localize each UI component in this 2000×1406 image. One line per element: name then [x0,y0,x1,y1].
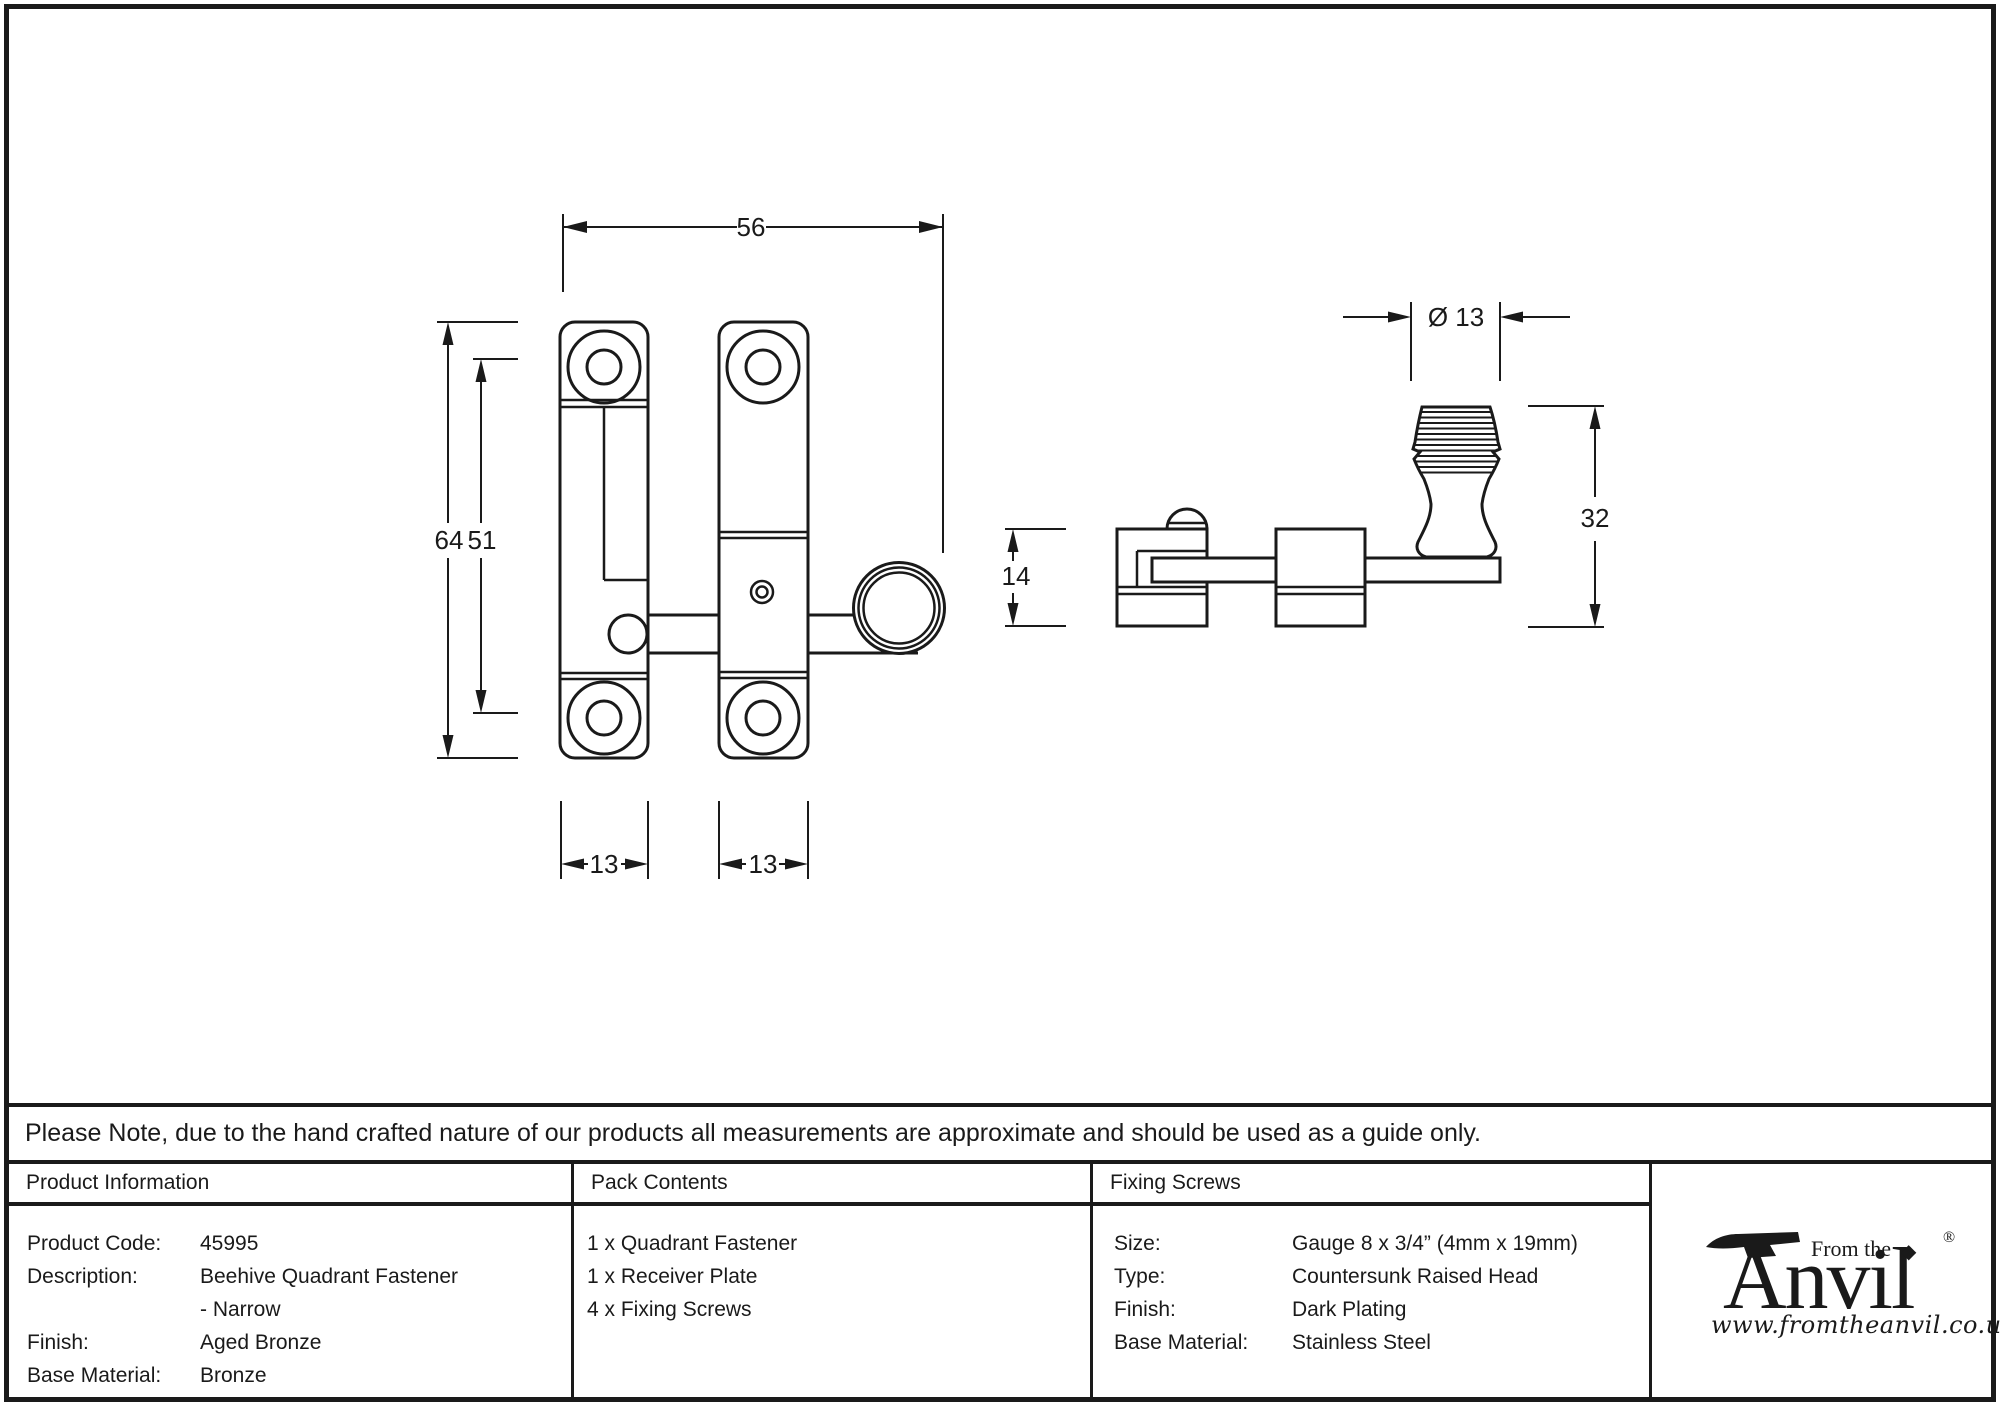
diamond-icon: ◆ [1901,1239,1916,1264]
front-view: 56 64 51 13 [435,212,945,879]
registered-mark: ® [1943,1229,1955,1247]
table-row: - Narrow [27,1293,571,1326]
anvil-icon [1706,1232,1800,1258]
pivot-block-side [1276,529,1365,626]
list-item: 4 x Fixing Screws [587,1293,1090,1326]
row-label: Size: [1114,1227,1292,1260]
row-label: Base Material: [27,1359,200,1392]
table-row: Description: Beehive Quadrant Fastener [27,1260,571,1293]
dim-label-dia13: Ø 13 [1428,302,1484,332]
row-label: Product Code: [27,1227,200,1260]
row-value: Aged Bronze [200,1326,321,1359]
dim-knob-dia-13: Ø 13 [1343,302,1570,381]
dim-label-32: 32 [1581,503,1610,533]
pack-contents-column: Pack Contents 1 x Quadrant Fastener 1 x … [571,1164,1090,1397]
table-row: Base Material: Bronze [27,1359,571,1392]
item-text: 1 x Receiver Plate [587,1260,757,1293]
table-row: Finish: Aged Bronze [27,1326,571,1359]
dim-height-51: 51 [468,359,518,713]
fixing-screws-column: Fixing Screws Size: Gauge 8 x 3/4” (4mm … [1090,1164,1649,1397]
spec-sheet-page: 56 64 51 13 [0,0,2000,1406]
product-information-body: Product Code: 45995 Description: Beehive… [9,1206,571,1392]
fixing-screws-header: Fixing Screws [1093,1164,1649,1206]
row-label: Finish: [27,1326,200,1359]
row-value: Gauge 8 x 3/4” (4mm x 19mm) [1292,1227,1578,1260]
dim-label-14: 14 [1002,561,1031,591]
pack-contents-header: Pack Contents [574,1164,1090,1206]
table-row: Finish: Dark Plating [1114,1293,1649,1326]
product-information-header: Product Information [9,1164,571,1206]
table-row: Base Material: Stainless Steel [1114,1326,1649,1359]
dim-depth-14: 14 [1002,529,1066,626]
dim-label-13b: 13 [749,849,778,879]
pack-contents-body: 1 x Quadrant Fastener 1 x Receiver Plate… [574,1206,1090,1326]
logo-website: www.fromtheanvil.co.uk [1711,1311,2000,1339]
row-label: Finish: [1114,1293,1292,1326]
brand-column: Anvil From the ◆ ® www.fromtheanvil.co.u… [1649,1164,1991,1397]
dim-label-56: 56 [737,212,766,242]
ring-handle [854,563,945,654]
table-row: Size: Gauge 8 x 3/4” (4mm x 19mm) [1114,1227,1649,1260]
row-value: Beehive Quadrant Fastener [200,1260,458,1293]
table-row: Type: Countersunk Raised Head [1114,1260,1649,1293]
dim-label-13a: 13 [590,849,619,879]
row-value: - Narrow [200,1293,281,1326]
row-value: Bronze [200,1359,267,1392]
logo-from-the: From the [1811,1236,1891,1262]
dim-plate2-13: 13 [719,801,808,879]
row-value: Countersunk Raised Head [1292,1260,1538,1293]
header-label: Pack Contents [591,1171,728,1195]
row-value: Dark Plating [1292,1293,1406,1326]
dim-label-51: 51 [468,525,497,555]
dome-stud [1167,509,1207,529]
row-label: Type: [1114,1260,1292,1293]
header-label: Fixing Screws [1110,1171,1241,1195]
row-label: Base Material: [1114,1326,1292,1359]
table-row: Product Code: 45995 [27,1227,571,1260]
header-label: Product Information [26,1171,209,1195]
from-the-anvil-logo: Anvil From the ◆ ® www.fromtheanvil.co.u… [1703,1228,1983,1358]
bar-end-pin [609,615,647,653]
spec-table: Product Information Product Code: 45995 … [9,1164,1991,1397]
item-text: 1 x Quadrant Fastener [587,1227,797,1260]
side-view: Ø 13 14 32 [1002,302,1610,627]
dim-height-32: 32 [1528,406,1609,627]
list-item: 1 x Quadrant Fastener [587,1227,1090,1260]
dim-plate1-13: 13 [561,801,648,879]
product-information-column: Product Information Product Code: 45995 … [9,1164,571,1397]
note-text: Please Note, due to the hand crafted nat… [25,1119,1481,1148]
beehive-knob [1405,407,1505,557]
technical-drawing: 56 64 51 13 [0,0,2000,1103]
row-label: Description: [27,1260,200,1293]
item-text: 4 x Fixing Screws [587,1293,752,1326]
row-value: 45995 [200,1227,258,1260]
list-item: 1 x Receiver Plate [587,1260,1090,1293]
measurement-note: Please Note, due to the hand crafted nat… [9,1103,1991,1164]
fixing-screws-body: Size: Gauge 8 x 3/4” (4mm x 19mm) Type: … [1093,1206,1649,1359]
row-value: Stainless Steel [1292,1326,1431,1359]
dim-label-64: 64 [435,525,464,555]
row-label [27,1293,200,1326]
